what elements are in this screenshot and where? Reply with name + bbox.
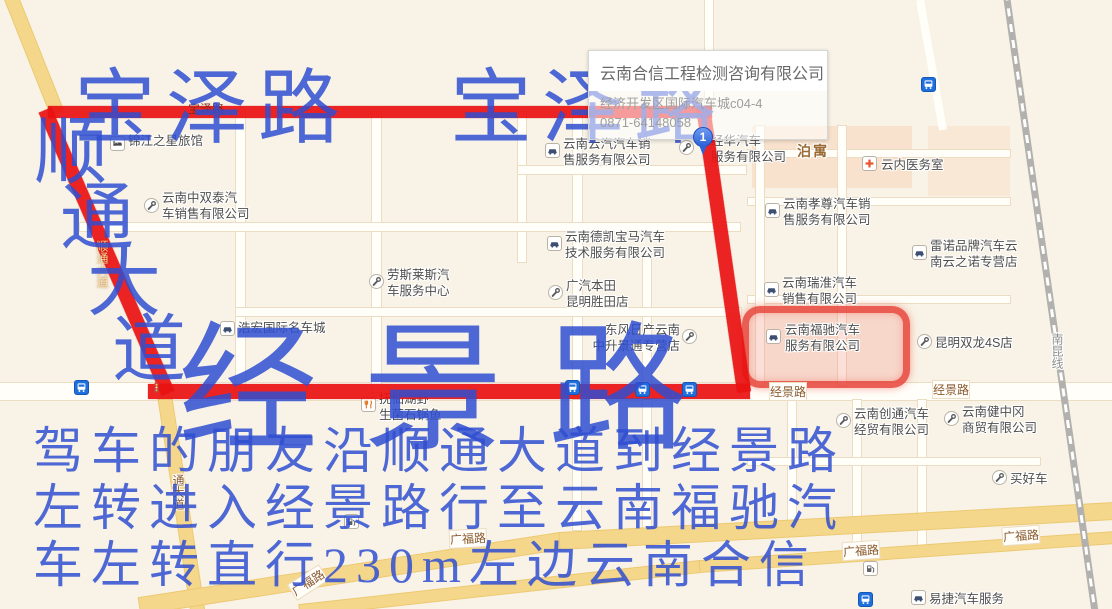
poi-label-line: 易捷汽车服务 [929, 591, 1004, 607]
car-icon[interactable] [765, 203, 780, 218]
wrench-icon[interactable] [548, 285, 563, 300]
poi-label-line: 经贸有限公司 [854, 422, 929, 438]
bus-icon[interactable] [921, 77, 936, 92]
poi-label[interactable]: 昆明双龙4S店 [935, 335, 1013, 351]
info-window-title: 云南合信工程检测咨询有限公司 [589, 51, 827, 91]
cross-icon[interactable] [862, 156, 877, 171]
wrench-icon[interactable] [369, 274, 384, 289]
marker-1[interactable]: 1 [693, 127, 713, 147]
annotation-directions-line: 车左转直行230m左边云南合信 [33, 540, 817, 590]
annotation-shuntong-char: 道 [112, 314, 186, 388]
poi-label[interactable]: 云内医务室 [881, 157, 944, 173]
map-road [916, 0, 947, 131]
wrench-icon[interactable] [917, 334, 932, 349]
poi-label[interactable]: 易捷汽车服务 [929, 591, 1004, 607]
car-icon[interactable] [911, 590, 926, 605]
poi-label-line: 售服务有限公司 [563, 152, 651, 168]
poi-label[interactable]: 云南创通汽车经贸有限公司 [854, 406, 929, 438]
road-label: 广福路 [1002, 526, 1039, 545]
poi-label-line: 售服务有限公司 [783, 212, 871, 228]
car-icon[interactable] [764, 282, 779, 297]
poi-label[interactable]: 云南孝尊汽车销售服务有限公司 [783, 196, 871, 228]
poi-label[interactable]: 云南福驰汽车服务有限公司 [785, 322, 860, 354]
wrench-icon[interactable] [944, 411, 959, 426]
poi-label[interactable]: 云南中双泰汽车销售有限公司 [162, 190, 250, 222]
wrench-icon[interactable] [992, 470, 1007, 485]
poi-label-line: 广汽本田 [566, 278, 629, 294]
poi-label-line: 云南创通汽车 [854, 406, 929, 422]
road-label: 南昆线 [1049, 333, 1066, 369]
bus-icon[interactable] [858, 592, 873, 607]
poi-label[interactable]: 劳斯莱斯汽车服务中心 [387, 267, 450, 299]
car-icon[interactable] [547, 236, 562, 251]
poi-label[interactable]: 云南瑞淮汽车销售有限公司 [782, 275, 857, 307]
gas-icon[interactable] [863, 561, 878, 576]
poi-label[interactable]: 云南德凯宝马汽车技术服务有限公司 [565, 229, 665, 261]
poi-label-line: 云南瑞淮汽车 [782, 275, 857, 291]
poi-label-line: 劳斯莱斯汽 [387, 267, 450, 283]
poi-label-line: 商贸有限公司 [962, 420, 1037, 436]
poi-label-line: 雷诺品牌汽车云 [930, 238, 1018, 254]
yellow-road [4, 0, 63, 114]
poi-label[interactable]: 买好车 [1010, 471, 1048, 487]
poi-label[interactable]: 广汽本田昆明胜田店 [566, 278, 629, 310]
car-icon[interactable] [912, 245, 927, 260]
poi-label-line: 技术服务有限公司 [565, 245, 665, 261]
info-window-address: 经济开发区国际汽车城c04-4 [600, 94, 816, 113]
road-label: 经景路 [933, 381, 969, 398]
road-label: 广福路 [842, 541, 879, 560]
poi-label-line: 云南德凯宝马汽车 [565, 229, 665, 245]
poi-label-line: 车服务中心 [387, 283, 450, 299]
poi-label-line: 昆明双龙4S店 [935, 335, 1013, 351]
poi-label-line: 车销售有限公司 [162, 206, 250, 222]
map-canvas[interactable]: 经景路经景路广福路广福路广福路广福路通大道南昆线泊寓宝泽路顺通大道锦江之星旅馆云… [0, 0, 1112, 609]
poi-label[interactable]: 雷诺品牌汽车云南云之诺专营店 [930, 238, 1018, 270]
annotation-directions-line: 左转进入经景路行至云南福驰汽 [33, 483, 845, 533]
poi-label-line: 昆明胜田店 [566, 294, 629, 310]
poi-label[interactable]: 云南健中冈商贸有限公司 [962, 404, 1037, 436]
poi-label-line: 云南福驰汽车 [785, 322, 860, 338]
wrench-icon[interactable] [144, 198, 159, 213]
poi-label-line: 云内医务室 [881, 157, 944, 173]
map-road [748, 150, 1010, 157]
car-icon[interactable] [766, 329, 781, 344]
annotation-directions-line: 驾车的朋友沿顺通大道到经景路 [33, 426, 845, 476]
road-label: 经景路 [770, 383, 806, 400]
poi-label-line: 销售有限公司 [782, 291, 857, 307]
poi-label-line: 南云之诺专营店 [930, 254, 1018, 270]
info-window: 云南合信工程检测咨询有限公司经济开发区国际汽车城c04-40871-641480… [588, 50, 828, 140]
annotation-baoze-road-left: 宝泽路 [74, 68, 350, 150]
road-label: 泊寓 [797, 141, 829, 161]
poi-label-line: 云南健中冈 [962, 404, 1037, 420]
poi-label-line: 服务有限公司 [785, 338, 860, 354]
poi-label-line: 买好车 [1010, 471, 1048, 487]
bus-icon[interactable] [74, 380, 89, 395]
poi-label-line: 云南中双泰汽 [162, 190, 250, 206]
poi-label-line: 云南孝尊汽车销 [783, 196, 871, 212]
